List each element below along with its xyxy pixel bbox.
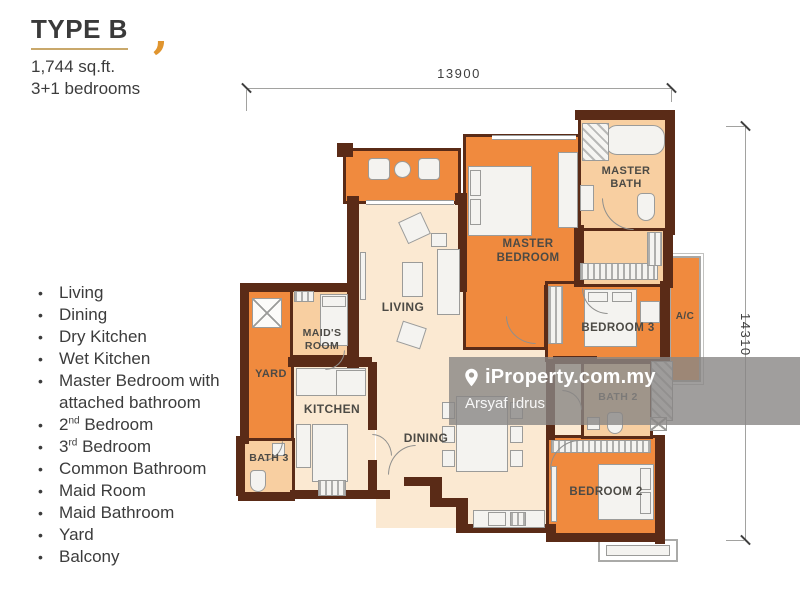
shelf — [294, 291, 314, 302]
bathtub — [605, 125, 665, 155]
room-label-bedroom-2: BEDROOM 2 — [554, 486, 658, 500]
watermark-brand: iProperty.com.my — [485, 366, 656, 389]
unit-area: 1,744 sq.ft. — [31, 56, 140, 78]
room-label-yard: YARD — [243, 368, 299, 381]
bullet-icon: • — [38, 282, 59, 304]
bullet-icon: • — [38, 348, 59, 370]
balcony-2-bench — [606, 545, 670, 556]
window — [492, 135, 576, 140]
floorplan-page: TYPE B , 1,744 sq.ft. 3+1 bedrooms •Livi… — [0, 0, 800, 598]
dimension-width-label: 13900 — [409, 66, 509, 81]
bullet-icon: • — [38, 436, 59, 458]
bullet-icon: • — [38, 458, 59, 480]
wardrobe — [647, 232, 662, 266]
list-item: •Dry Kitchen — [38, 326, 233, 348]
list-item: •Balcony — [38, 546, 233, 568]
wardrobe — [548, 286, 563, 344]
list-item: •Wet Kitchen — [38, 348, 233, 370]
room-label-master-bedroom: MASTER BEDROOM — [478, 238, 578, 266]
dimension-extension — [726, 540, 745, 541]
wall — [368, 460, 377, 494]
list-item: •2nd Bedroom — [38, 414, 233, 436]
pillow — [470, 199, 481, 225]
bullet-icon: • — [38, 414, 59, 436]
bullet-icon: • — [38, 502, 59, 524]
toilet — [250, 470, 266, 492]
list-item: •Dining — [38, 304, 233, 326]
list-item: •Living — [38, 282, 233, 304]
room-label-living: LIVING — [363, 300, 443, 314]
dimension-extension — [726, 126, 745, 127]
wall — [546, 533, 665, 542]
fridge — [336, 370, 366, 396]
dining-chair — [442, 450, 455, 467]
dining-chair — [510, 426, 523, 443]
pillow — [470, 170, 481, 196]
pillow — [612, 292, 632, 302]
dimension-extension — [671, 89, 672, 102]
bullet-icon: • — [38, 370, 59, 414]
list-item: •3rd Bedroom — [38, 436, 233, 458]
feature-list: •Living •Dining •Dry Kitchen •Wet Kitche… — [38, 282, 233, 568]
room-label-master-bath: MASTER BATH — [586, 165, 666, 191]
plant — [431, 233, 447, 247]
header: TYPE B , 1,744 sq.ft. 3+1 bedrooms — [31, 14, 140, 100]
wall — [575, 110, 675, 120]
bullet-icon: • — [38, 524, 59, 546]
pillow — [322, 296, 346, 307]
dry-kitchen-counter — [473, 510, 545, 528]
room-label-bedroom-3: BEDROOM 3 — [566, 322, 670, 336]
dimension-line-width — [246, 88, 672, 89]
wall — [337, 143, 353, 157]
coffee-table — [402, 262, 423, 297]
counter-sink — [488, 512, 506, 526]
bullet-icon: • — [38, 304, 59, 326]
list-item: •Yard — [38, 524, 233, 546]
room-label-bath-3: BATH 3 — [247, 452, 291, 465]
wall — [663, 228, 673, 288]
kitchen-island — [312, 424, 348, 482]
toilet — [637, 193, 655, 221]
wall — [368, 362, 377, 430]
balcony-chair — [418, 158, 440, 180]
bullet-icon: • — [38, 326, 59, 348]
tv-console — [360, 252, 366, 300]
list-item: •Maid Room — [38, 480, 233, 502]
counter-appliance — [510, 512, 526, 526]
kitchen-counter — [296, 424, 311, 468]
room-label-dining: DINING — [386, 431, 466, 445]
sliding-door — [366, 200, 454, 205]
desk — [640, 301, 660, 323]
stove — [318, 480, 346, 496]
balcony-table — [394, 161, 411, 178]
bullet-icon: • — [38, 480, 59, 502]
wall — [238, 492, 295, 501]
accent-comma-mark: , — [153, 12, 168, 56]
page-title: TYPE B — [31, 14, 128, 50]
bullet-icon: • — [38, 546, 59, 568]
room-label-maids-room: MAID'S ROOM — [291, 327, 353, 352]
wall — [240, 283, 294, 292]
wall — [236, 436, 245, 496]
watermark-agent: Arsyaf Idrus — [465, 395, 545, 412]
dining-chair — [510, 450, 523, 467]
balcony-chair — [368, 158, 390, 180]
dimension-extension — [246, 89, 247, 111]
dresser — [558, 152, 578, 228]
location-pin-icon — [464, 368, 479, 387]
list-item: •Common Bathroom — [38, 458, 233, 480]
washer-area — [252, 298, 282, 328]
room-label-kitchen: KITCHEN — [292, 402, 372, 416]
list-item: •Maid Bathroom — [38, 502, 233, 524]
room-label-ac: A/C — [667, 311, 703, 323]
wall — [240, 286, 249, 444]
unit-bedrooms: 3+1 bedrooms — [31, 78, 140, 100]
wall — [665, 110, 675, 235]
wall — [404, 477, 436, 486]
watermark: iProperty.com.my Arsyaf Idrus — [449, 357, 800, 425]
shower-master-bath — [582, 123, 609, 161]
list-item: •Master Bedroom with attached bathroom — [38, 370, 233, 414]
